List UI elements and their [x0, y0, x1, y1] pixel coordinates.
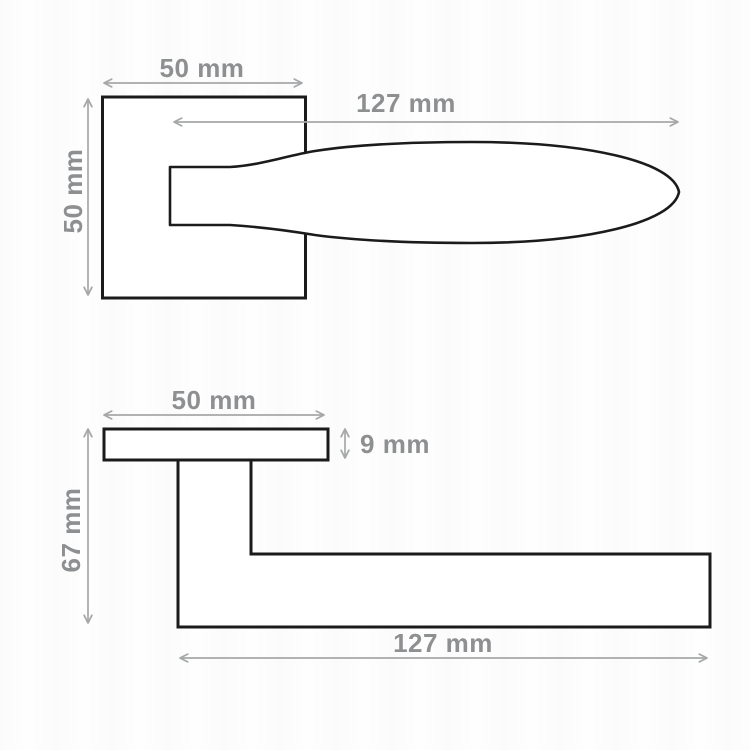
front-height-dimension-label: 50 mm	[58, 149, 88, 234]
lever-side-outline	[178, 460, 710, 627]
front-length-dimension-label: 127 mm	[356, 88, 456, 118]
side-width-dimension-label: 50 mm	[172, 385, 257, 415]
diagram-canvas: 50 mm 50 mm 127 mm 50 mm 9 mm 67 mm	[0, 0, 750, 750]
side-thickness-dimension-label: 9 mm	[360, 429, 430, 459]
front-width-dimension-label: 50 mm	[160, 53, 245, 83]
side-height-dimension-label: 67 mm	[56, 488, 86, 573]
dimension-drawing: 50 mm 50 mm 127 mm 50 mm 9 mm 67 mm	[0, 0, 750, 750]
side-view: 50 mm 9 mm 67 mm 127 mm	[56, 385, 710, 658]
front-view: 50 mm 50 mm 127 mm	[58, 53, 679, 298]
rosette-side-outline	[104, 429, 328, 460]
side-length-dimension-label: 127 mm	[393, 628, 493, 658]
